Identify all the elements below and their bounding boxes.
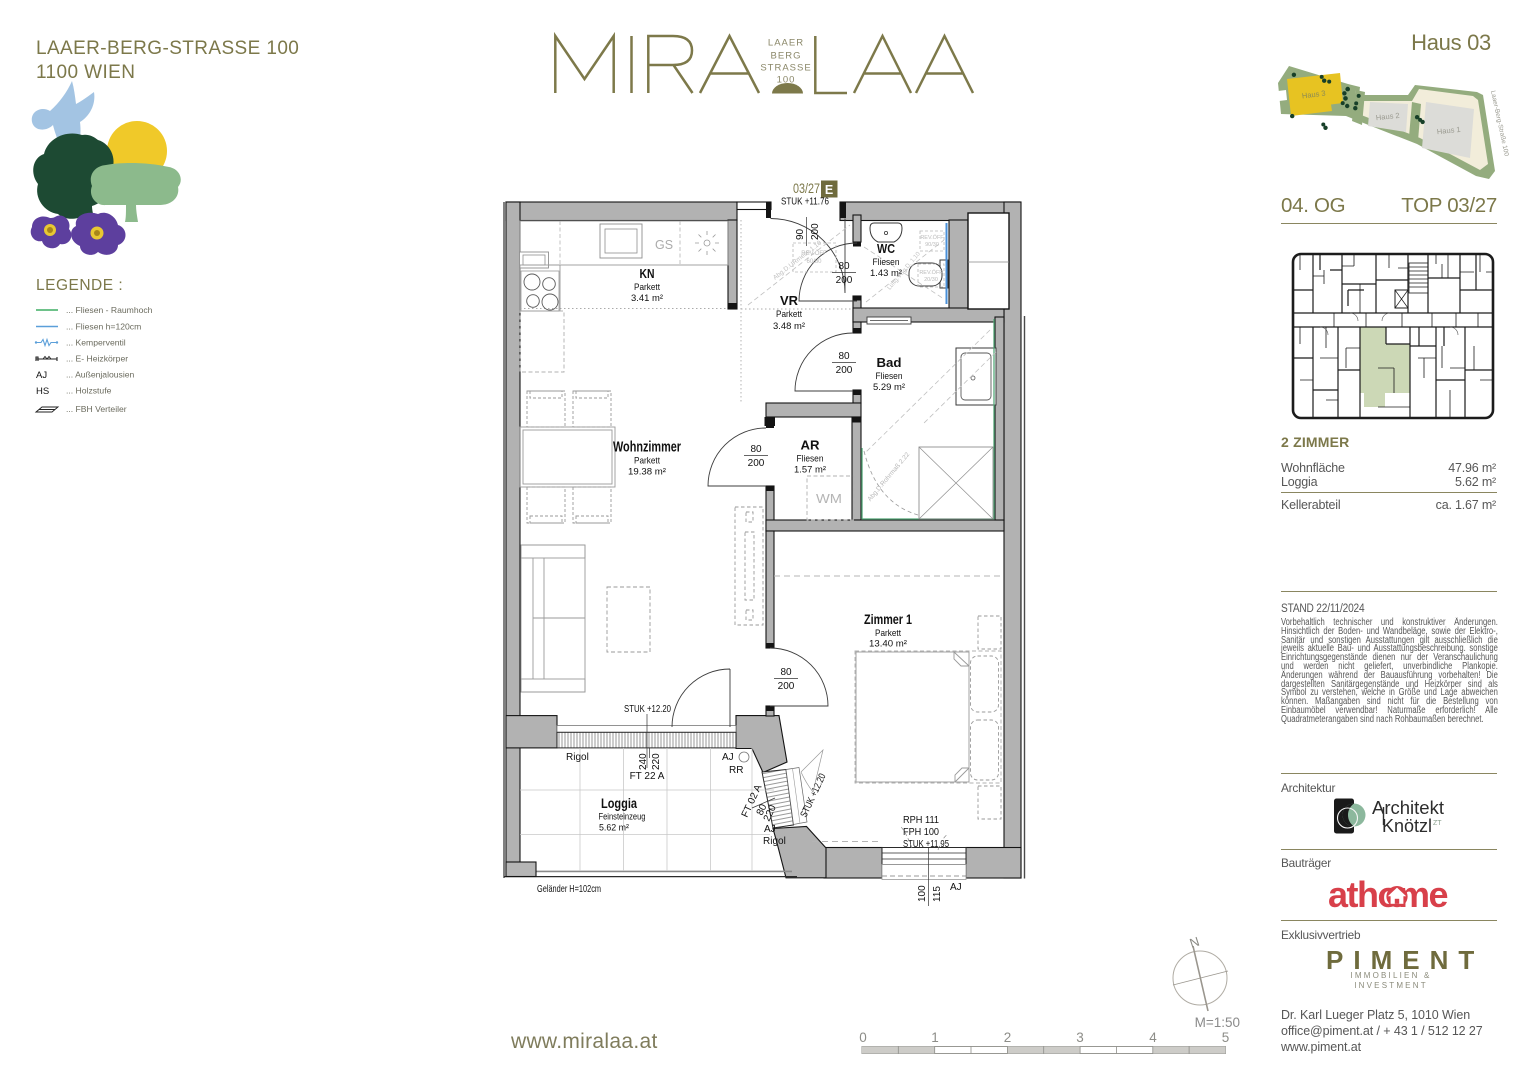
svg-text:Fliesen: Fliesen <box>876 371 903 382</box>
svg-text:80: 80 <box>750 444 762 455</box>
svg-text:60/80: 60/80 <box>806 259 822 265</box>
svg-text:Bad: Bad <box>877 355 902 370</box>
svg-text:240: 240 <box>638 753 649 770</box>
svg-text:200: 200 <box>778 681 795 692</box>
svg-text:1.57 m²: 1.57 m² <box>794 465 826 476</box>
svg-text:AJ: AJ <box>722 752 734 763</box>
svg-text:Fliesen: Fliesen <box>797 454 824 465</box>
svg-text:STUK +11.76: STUK +11.76 <box>781 196 829 208</box>
svg-text:GS: GS <box>655 238 673 252</box>
svg-text:80: 80 <box>838 261 850 272</box>
svg-text:220: 220 <box>651 753 662 770</box>
svg-text:WM: WM <box>816 491 842 506</box>
svg-text:200: 200 <box>836 365 853 376</box>
svg-text:Feinsteinzeug: Feinsteinzeug <box>599 812 646 823</box>
svg-text:WC: WC <box>877 241 895 256</box>
svg-text:FT 22 A: FT 22 A <box>630 771 665 782</box>
svg-text:19.38 m²: 19.38 m² <box>628 467 666 478</box>
svg-text:90: 90 <box>795 228 806 240</box>
svg-text:1.43 m²: 1.43 m² <box>870 268 902 279</box>
svg-text:AJ: AJ <box>950 882 962 893</box>
svg-text:RR: RR <box>729 765 743 776</box>
svg-text:20/30: 20/30 <box>924 277 938 283</box>
svg-text:Loggia: Loggia <box>601 796 637 811</box>
svg-text:AJ: AJ <box>764 824 776 835</box>
svg-text:Fliesen: Fliesen <box>873 257 900 268</box>
svg-text:RPH 111: RPH 111 <box>903 815 939 826</box>
svg-text:Parkett: Parkett <box>634 282 660 293</box>
svg-text:AR: AR <box>801 438 821 453</box>
svg-text:Geländer H=102cm: Geländer H=102cm <box>537 883 601 895</box>
svg-text:Parkett: Parkett <box>634 456 660 467</box>
svg-text:Rigol: Rigol <box>763 836 786 847</box>
svg-text:13.40 m²: 13.40 m² <box>869 639 907 650</box>
svg-text:3.48 m²: 3.48 m² <box>773 321 805 332</box>
svg-text:FPH 100: FPH 100 <box>903 827 939 838</box>
svg-text:03/27: 03/27 <box>793 181 820 196</box>
svg-text:Rigol: Rigol <box>566 752 589 763</box>
svg-text:80: 80 <box>780 667 792 678</box>
svg-text:200: 200 <box>748 458 765 469</box>
svg-text:Wohnzimmer: Wohnzimmer <box>613 440 681 456</box>
svg-text:90/30: 90/30 <box>925 242 939 248</box>
svg-text:KN: KN <box>640 266 655 281</box>
svg-text:115: 115 <box>932 886 943 902</box>
svg-text:Parkett: Parkett <box>776 309 802 320</box>
svg-text:REV.ÖFF: REV.ÖFF <box>920 234 944 241</box>
svg-text:200: 200 <box>810 223 821 240</box>
svg-text:80: 80 <box>838 351 850 362</box>
svg-text:5.62 m²: 5.62 m² <box>599 823 629 834</box>
svg-text:STUK +12.20: STUK +12.20 <box>624 704 671 715</box>
svg-text:3.41 m²: 3.41 m² <box>631 293 663 304</box>
svg-text:5.29 m²: 5.29 m² <box>873 382 905 393</box>
svg-text:Abg.D.Rohrmaß 2.22: Abg.D.Rohrmaß 2.22 <box>866 451 911 503</box>
svg-text:100: 100 <box>917 885 928 902</box>
svg-text:200: 200 <box>836 275 853 286</box>
svg-text:Parkett: Parkett <box>875 628 901 639</box>
svg-text:VR: VR <box>780 293 799 308</box>
svg-text:REV.ÖFF: REV.ÖFF <box>919 269 943 276</box>
svg-text:Zimmer 1: Zimmer 1 <box>864 612 912 627</box>
